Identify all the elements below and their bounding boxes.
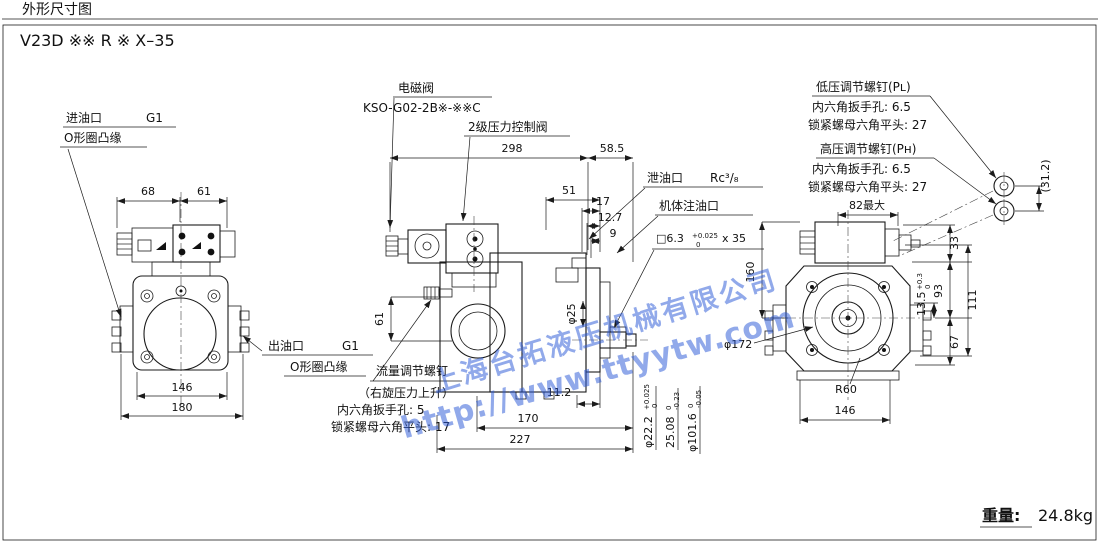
dim-111: 111: [966, 290, 979, 311]
shaft-dia: φ22.2: [642, 416, 655, 448]
dim-33: 33: [948, 236, 961, 250]
rear-dims-left-bottom: 160 φ172 R60 146: [724, 222, 890, 424]
dim-160: 160: [744, 262, 757, 283]
side-solenoid-assembly: [386, 216, 498, 292]
side-dims-cascade: 51 17 12.7 9: [546, 184, 622, 258]
dia-172: φ172: [724, 338, 752, 351]
key-height-dim: 25.08 0 -0.23: [664, 388, 681, 450]
drain-thread: Rc³/₈: [710, 171, 739, 185]
high-pressure-label: 高压调节螺钉(Pʜ): [820, 141, 916, 156]
dim-13-5-tol-upper: +0.3: [916, 273, 924, 290]
dim-146-front: 146: [172, 381, 193, 394]
drain-label: 泄油口: [647, 171, 683, 185]
shaft-tol-upper: +0.025: [643, 384, 651, 410]
key-height: 25.08: [664, 417, 677, 449]
rear-pump-body: [765, 210, 935, 400]
dim-146-rear: 146: [835, 404, 856, 417]
dim-170: 170: [518, 412, 539, 425]
shaft-tol-lower: 0: [651, 404, 659, 408]
key-length: x 35: [722, 232, 746, 245]
page-frame: [2, 19, 1098, 540]
inlet-label: 进油口: [66, 111, 102, 125]
dim-227: 227: [510, 433, 531, 446]
dim-68: 68: [141, 185, 155, 198]
flow-screw-lock: 锁紧螺母六角平头: 17: [331, 419, 450, 434]
dim-51: 51: [562, 184, 576, 197]
side-dims-bottom: 11.2 170 227: [437, 352, 633, 453]
side-port-labels: 泄油口 Rc³/₈ 机体注油口 □6.3 +0.025 0 x 35: [589, 171, 764, 328]
key-height-tol-upper: 0: [665, 406, 673, 410]
key-spec: □6.3: [656, 232, 684, 245]
solenoid-model: KSO-G02-2B※-※※C: [363, 101, 481, 115]
pilot-valve-label: 2级压力控制阀: [468, 120, 548, 134]
inlet-flange-note: O形圈凸缘: [64, 131, 121, 145]
low-pressure-lock: 锁紧螺母六角平头: 27: [808, 117, 927, 132]
low-pressure-hex: 内六角扳手孔: 6.5: [812, 100, 911, 114]
dim-phi25: φ25: [565, 303, 578, 324]
dim-31-2: (31.2): [1039, 159, 1052, 192]
weight-block: 重量: 24.8kg: [980, 506, 1093, 527]
key-height-tol-lower: -0.23: [673, 392, 681, 410]
front-port-labels: 进油口 G1 O形圈凸缘 出油口 G1 O形圈凸缘: [60, 111, 373, 376]
front-pump-body: [112, 276, 249, 370]
front-dims-bottom: 146 180: [121, 354, 243, 420]
spigot-dia-dim: φ101.6 0 -0.05: [686, 386, 703, 454]
dim-67: 67: [948, 335, 961, 349]
weight-value: 24.8kg: [1038, 506, 1093, 525]
flow-screw-note: （右旋压力上升）: [358, 385, 454, 400]
shaft-dia-dim: φ22.2 +0.025 0: [642, 384, 659, 450]
dim-298: 298: [502, 142, 523, 155]
low-pressure-label: 低压调节螺钉(Pʟ): [816, 80, 911, 94]
model-code: V23D ※※ R ※ X–35: [20, 31, 175, 50]
rear-solenoid: [800, 222, 920, 263]
inlet-thread: G1: [146, 111, 163, 125]
outlet-label: 出油口: [268, 339, 304, 353]
dimension-drawing-page: 外形尺寸图 V23D ※※ R ※ X–35: [0, 0, 1100, 546]
dim-93: 93: [932, 284, 945, 298]
dim-13-5-tol-lower: 0: [924, 285, 932, 289]
side-view: 电磁阀 KSO-G02-2B※-※※C 2级压力控制阀 298 58.5 51: [331, 80, 764, 454]
dim-11-2: 11.2: [547, 386, 572, 399]
adjustment-screws-detail: (31.2): [893, 159, 1052, 256]
side-pump-body: [424, 253, 648, 399]
radius-r60: R60: [835, 383, 857, 396]
spigot-dia: φ101.6: [686, 413, 699, 452]
flow-screw-hex: 内六角扳手孔: 5: [337, 403, 425, 417]
dim-13-5: 13.5: [915, 292, 928, 317]
front-solenoid-valve: [117, 225, 235, 276]
dim-61: 61: [197, 185, 211, 198]
high-pressure-hex: 内六角扳手孔: 6.5: [812, 162, 911, 176]
solenoid-label: 电磁阀: [398, 80, 434, 95]
dim-9: 9: [610, 227, 617, 240]
dim-58-5: 58.5: [600, 142, 625, 155]
side-top-labels: 电磁阀 KSO-G02-2B※-※※C 2级压力控制阀: [363, 80, 570, 228]
flow-screw-label: 流量调节螺钉: [376, 364, 448, 378]
spigot-tol-lower: -0.05: [695, 390, 703, 408]
dim-82max: 82最大: [849, 198, 885, 212]
front-view: 68 61 146 180 进油口 G1 O形圈凸缘 出油口 G1 O形圈凸缘: [60, 111, 373, 420]
dim-12-7: 12.7: [598, 211, 623, 224]
pressure-screw-labels: 低压调节螺钉(Pʟ) 内六角扳手孔: 6.5 锁紧螺母六角平头: 27 高压调节…: [808, 80, 996, 204]
key-tol-upper: +0.025: [692, 232, 718, 240]
weight-label: 重量:: [982, 506, 1020, 525]
dim-180: 180: [172, 401, 193, 414]
front-dims-top: 68 61: [117, 185, 227, 228]
key-tol-lower: 0: [696, 241, 700, 249]
fill-port-label: 机体注油口: [659, 198, 719, 213]
spigot-tol-upper: 0: [687, 404, 695, 408]
outlet-thread: G1: [342, 339, 359, 353]
dimension-drawing: 外形尺寸图 V23D ※※ R ※ X–35: [0, 0, 1100, 546]
page-title: 外形尺寸图: [22, 2, 92, 18]
rear-view: (31.2) 低压调节螺钉(Pʟ) 内六角扳手孔: 6.5 锁紧螺母六角平头: …: [724, 80, 1052, 424]
flow-screw-labels: 流量调节螺钉 （右旋压力上升） 内六角扳手孔: 5 锁紧螺母六角平头: 17: [331, 300, 462, 434]
outlet-flange-note: O形圈凸缘: [290, 360, 347, 374]
high-pressure-lock: 锁紧螺母六角平头: 27: [808, 179, 927, 194]
dim-17: 17: [596, 195, 610, 208]
rear-dims-right: 33 93 67 111 13.5 +0.3 0: [903, 225, 979, 365]
dim-61-vert: 61: [373, 312, 386, 326]
